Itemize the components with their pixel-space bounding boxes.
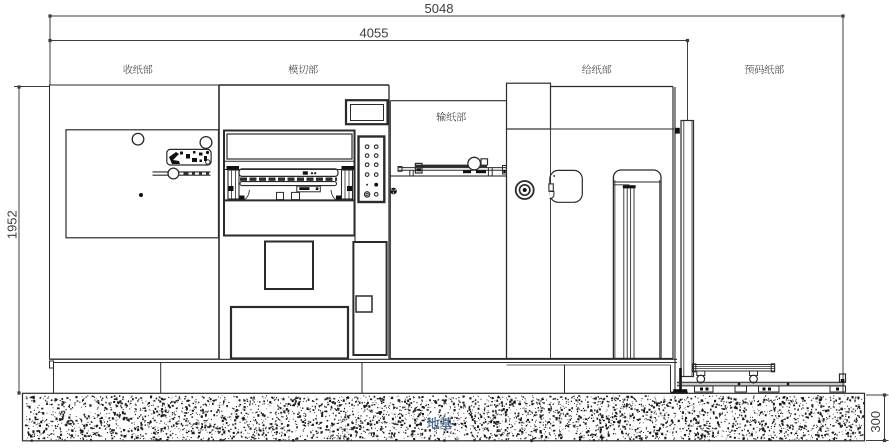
svg-text:4055: 4055 bbox=[360, 25, 389, 40]
svg-text:300: 300 bbox=[868, 411, 883, 433]
svg-text:5048: 5048 bbox=[425, 1, 454, 16]
svg-text:1952: 1952 bbox=[4, 210, 19, 239]
